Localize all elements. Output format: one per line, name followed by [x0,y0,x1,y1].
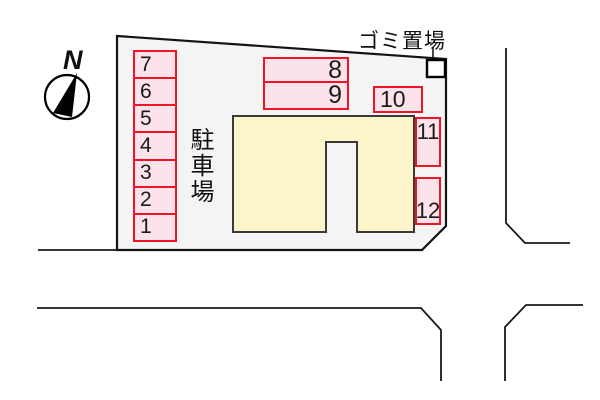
parking-space-6: 6 [133,77,177,106]
parking-space-2: 2 [133,186,177,215]
road-edge-right-lower [505,305,583,381]
garbage-area-label: ゴミ置場 [358,25,446,55]
parking-left-column: 7 6 5 4 3 2 1 [133,50,177,242]
compass [45,73,89,119]
parking-space-11: 11 [415,117,441,167]
parking-space-9: 9 [263,81,349,110]
building-footprint [233,116,414,232]
parking-space-7: 7 [133,50,177,79]
north-label: N [63,45,83,76]
parking-lot-label: 駐車場 [185,127,213,205]
parking-space-12: 12 [415,177,441,225]
parking-space-8: 8 [263,57,349,83]
site-plan-canvas: N ゴミ置場 駐車場 7 6 5 4 3 2 1 8 9 10 11 12 [0,0,600,400]
parking-space-3: 3 [133,159,177,188]
parking-space-5: 5 [133,104,177,133]
garbage-bin-marker [427,60,445,77]
road-edge-bottom-left [37,308,441,381]
parking-space-10: 10 [373,86,423,113]
road-edge-right-upper [506,48,570,243]
parking-space-4: 4 [133,131,177,160]
parking-space-1: 1 [133,213,177,242]
